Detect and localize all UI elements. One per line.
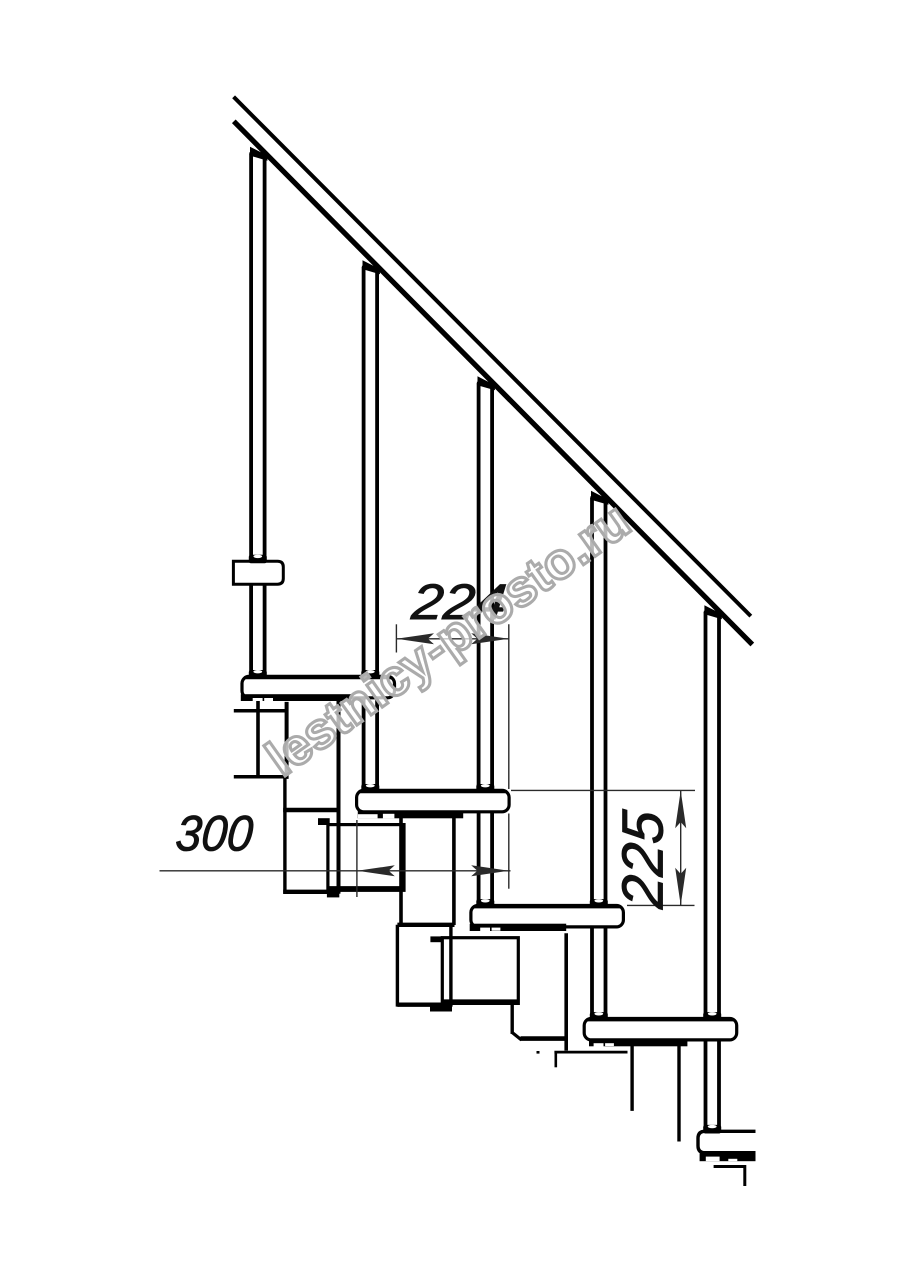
svg-text:225: 225	[611, 807, 676, 911]
svg-text:300: 300	[174, 806, 256, 862]
